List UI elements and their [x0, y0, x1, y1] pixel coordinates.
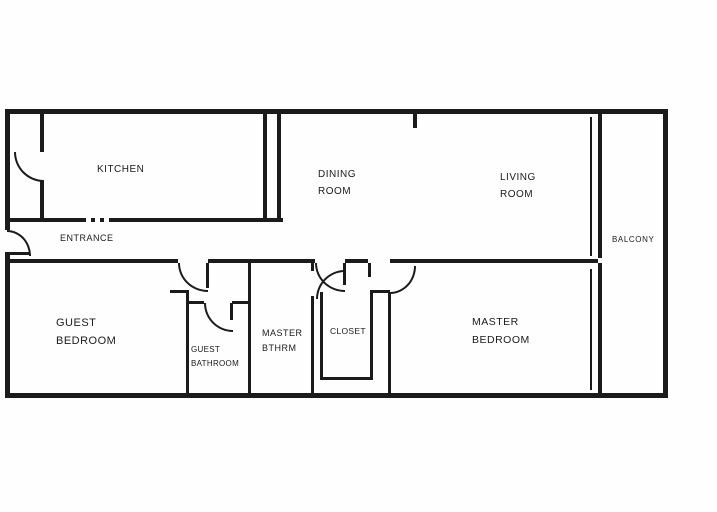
wall-master-bath-right-stub	[311, 263, 314, 271]
room-guest-bathroom	[189, 304, 248, 393]
room-pantry-closet	[10, 114, 40, 218]
wall-outer-right	[663, 109, 668, 398]
wall-master-bedroom-jog	[370, 290, 390, 293]
room-living	[417, 114, 590, 259]
room-balcony	[602, 114, 663, 393]
wall-outer-bottom	[5, 393, 668, 398]
room-master-bedroom	[391, 263, 590, 393]
room-dining	[281, 114, 413, 259]
room-master-bathroom	[251, 263, 311, 393]
room-closet	[323, 292, 370, 377]
master-bedroom-door-leaf	[368, 263, 371, 277]
room-kitchen	[44, 114, 263, 218]
wall-closet-right	[370, 292, 373, 380]
master-window-inner-line	[590, 269, 592, 390]
balcony-slider-inner-line	[590, 117, 592, 256]
wall-closet-bottom	[320, 377, 373, 380]
wall-master-bath-right	[311, 296, 314, 393]
wall-kitchen-right-inner	[263, 112, 267, 220]
floor-plan: KITCHEN DINING ROOM LIVING ROOM BALCONY …	[0, 0, 717, 512]
room-guest-bedroom	[10, 263, 186, 393]
room-entrance-hall	[10, 222, 281, 259]
wall-hall-seg3	[345, 259, 368, 263]
